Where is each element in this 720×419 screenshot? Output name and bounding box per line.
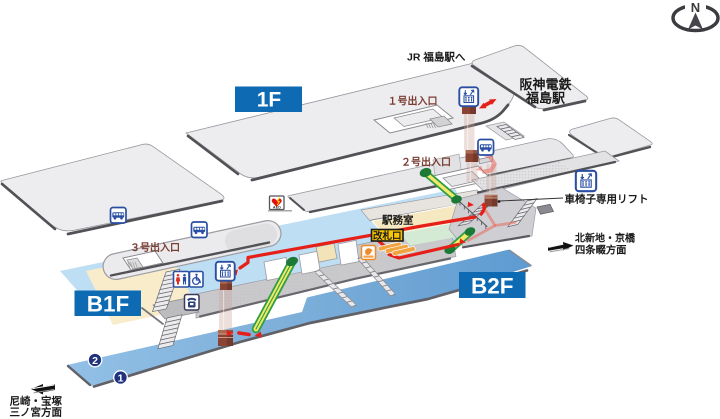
svg-text:2: 2 bbox=[92, 355, 98, 367]
svg-text:三ノ宮方面: 三ノ宮方面 bbox=[10, 406, 63, 419]
svg-text:改札口: 改札口 bbox=[373, 230, 402, 242]
svg-text:N: N bbox=[691, 0, 700, 15]
svg-text:２号出入口: ２号出入口 bbox=[401, 156, 451, 169]
svg-text:車椅子専用リフト: 車椅子専用リフト bbox=[565, 193, 649, 206]
svg-text:B1F: B1F bbox=[87, 292, 130, 317]
svg-text:1F: 1F bbox=[257, 89, 282, 112]
svg-text:１号出入口: １号出入口 bbox=[388, 95, 438, 108]
svg-text:JR 福島駅へ: JR 福島駅へ bbox=[407, 51, 466, 64]
svg-text:駅務室: 駅務室 bbox=[382, 214, 414, 227]
svg-text:四条畷方面: 四条畷方面 bbox=[575, 244, 626, 257]
svg-text:1: 1 bbox=[118, 372, 124, 384]
svg-text:３号出入口: ３号出入口 bbox=[130, 241, 180, 254]
svg-text:AED: AED bbox=[273, 206, 281, 210]
svg-text:B2F: B2F bbox=[471, 274, 514, 299]
svg-text:北新地・京橋: 北新地・京橋 bbox=[575, 232, 636, 245]
svg-text:福島駅: 福島駅 bbox=[525, 91, 566, 106]
